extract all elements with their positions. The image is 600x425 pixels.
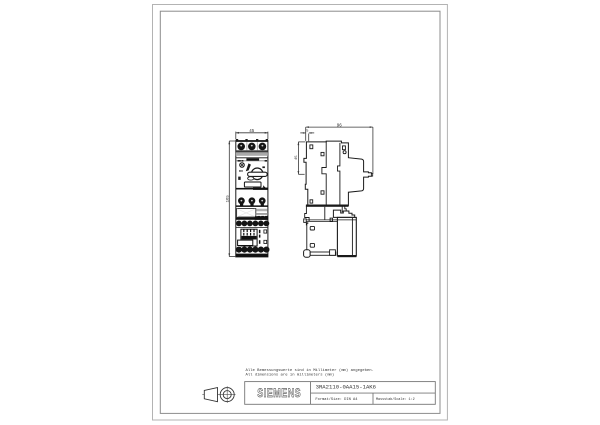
svg-text:45: 45 (295, 155, 299, 159)
svg-text:SIEMENS: SIEMENS (257, 388, 301, 400)
svg-text:5: 5 (306, 130, 308, 134)
svg-text:All dimensions are in millimet: All dimensions are in millimeters (mm) (246, 373, 335, 378)
svg-text:165: 165 (226, 195, 230, 203)
svg-text:Massstab/Scale: 1:2: Massstab/Scale: 1:2 (376, 397, 415, 402)
svg-text:3RA2110-0AA15-1AK6: 3RA2110-0AA15-1AK6 (316, 383, 376, 390)
svg-text:45: 45 (249, 130, 255, 134)
svg-text:Alle Bemessungswerte sind in M: Alle Bemessungswerte sind in Millimeter … (246, 368, 374, 373)
svg-text:96: 96 (337, 124, 343, 128)
svg-text:Format/Size: DIN A4: Format/Size: DIN A4 (315, 397, 358, 402)
